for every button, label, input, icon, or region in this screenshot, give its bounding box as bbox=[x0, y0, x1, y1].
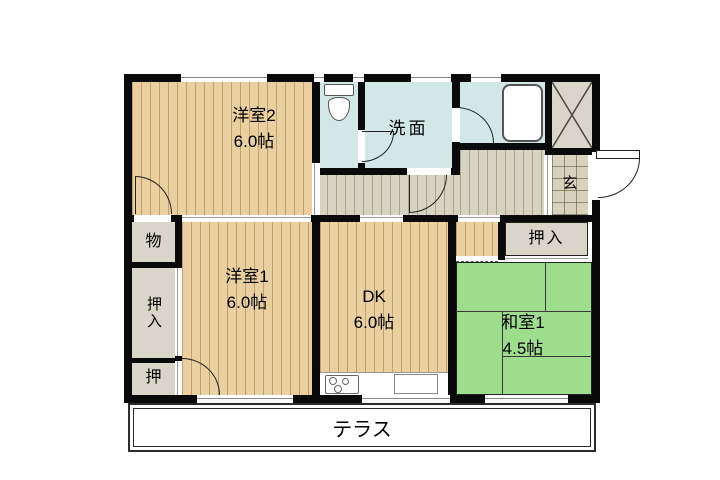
door-leaf bbox=[135, 176, 136, 214]
bathtub-icon bbox=[502, 84, 543, 142]
sliding-door bbox=[458, 215, 500, 222]
window bbox=[353, 74, 364, 82]
window bbox=[485, 395, 568, 403]
wall bbox=[545, 74, 552, 155]
genkan-step-edge bbox=[544, 155, 552, 215]
window bbox=[362, 395, 450, 403]
sliding-door bbox=[175, 268, 182, 356]
toilet-icon bbox=[324, 84, 354, 96]
terrace: テラス bbox=[128, 403, 596, 452]
room-label-dk: DK 6.0帖 bbox=[310, 284, 438, 335]
window bbox=[471, 74, 501, 82]
room-name: 和室1 bbox=[456, 310, 590, 336]
sliding-door bbox=[360, 215, 403, 222]
door-opening bbox=[407, 168, 451, 175]
room-size: 4.5帖 bbox=[456, 336, 590, 362]
washitsu-entry-nook-floor bbox=[456, 222, 498, 258]
closet-label-oshiire-tatami: 押入 bbox=[505, 227, 588, 251]
window bbox=[181, 74, 267, 82]
closet-label-mono: 物 bbox=[132, 230, 175, 254]
burner-icon bbox=[334, 385, 342, 393]
burner-icon bbox=[329, 377, 337, 385]
room-name: 洗面 bbox=[365, 116, 452, 142]
room-name: DK bbox=[310, 284, 438, 310]
closet-name: 押 bbox=[132, 366, 175, 390]
room-label-senmen: 洗面 bbox=[365, 116, 452, 142]
wall bbox=[124, 358, 175, 363]
terrace-label: テラス bbox=[133, 408, 591, 447]
terrace-name: テラス bbox=[332, 413, 392, 442]
closet-name: 押入 bbox=[143, 296, 164, 330]
wall bbox=[448, 215, 456, 395]
entry-door-swing-arc bbox=[598, 158, 640, 198]
wall bbox=[592, 74, 600, 403]
sliding-door bbox=[175, 361, 182, 395]
burner-icon bbox=[342, 378, 349, 385]
nook-step-dashed-line bbox=[456, 256, 498, 262]
wall bbox=[452, 143, 545, 150]
room-label-yoshitsu2: 洋室2 6.0帖 bbox=[192, 103, 316, 154]
window bbox=[411, 74, 451, 82]
room-size: 6.0帖 bbox=[310, 310, 438, 336]
room-label-washitsu1: 和室1 4.5帖 bbox=[456, 310, 590, 361]
room-name: 洋室1 bbox=[185, 264, 309, 290]
room-label-genkan: 玄 bbox=[552, 173, 588, 196]
sliding-door bbox=[312, 163, 320, 215]
window bbox=[197, 395, 293, 403]
hallway-floor-east bbox=[460, 150, 545, 215]
closet-label-oshi: 押 bbox=[132, 366, 175, 390]
wall bbox=[124, 74, 132, 403]
room-name: 洋室2 bbox=[192, 103, 316, 129]
floor-plan: 洋室2 6.0帖 洗面 玄 物 押入 押 洋室1 6.0帖 DK 6.0帖 押入… bbox=[0, 0, 720, 480]
tatami-mat-line bbox=[545, 262, 546, 312]
window bbox=[314, 74, 324, 82]
room-name: 玄 bbox=[552, 173, 588, 196]
room-label-yoshitsu1: 洋室1 6.0帖 bbox=[185, 264, 309, 315]
door-leaf bbox=[409, 175, 410, 213]
closet-name: 押入 bbox=[505, 227, 588, 251]
closet-name: 物 bbox=[132, 230, 175, 254]
storage-x-icon bbox=[552, 82, 592, 148]
room-size: 6.0帖 bbox=[192, 129, 316, 155]
sliding-door bbox=[505, 256, 588, 262]
kitchen-sink-icon bbox=[394, 374, 438, 394]
room-size: 6.0帖 bbox=[185, 290, 309, 316]
sliding-door bbox=[182, 215, 311, 222]
closet-label-oshiire-west: 押入 bbox=[132, 268, 175, 358]
door-opening bbox=[134, 215, 171, 222]
